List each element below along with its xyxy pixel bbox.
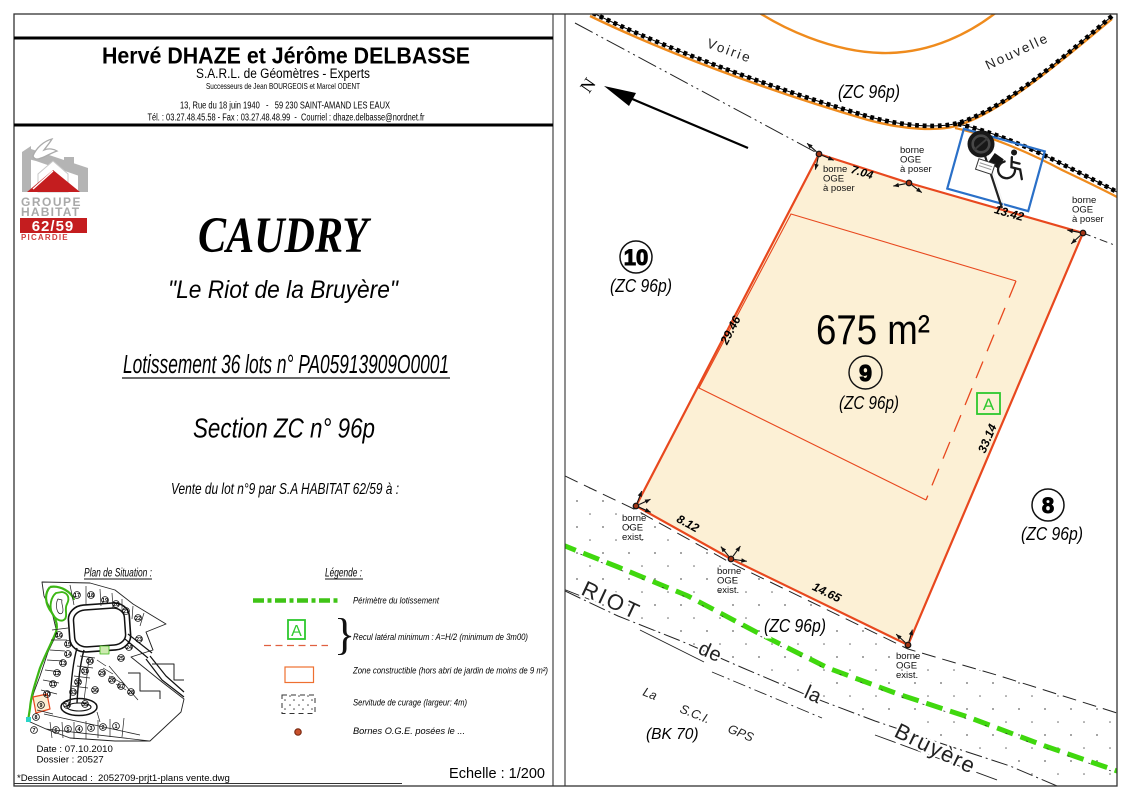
svg-text:33: 33 [70, 690, 76, 696]
svg-text:7: 7 [33, 728, 36, 734]
svg-text:(ZC 96p): (ZC 96p) [1021, 524, 1083, 544]
svg-text:Section ZC n° 96p: Section ZC n° 96p [193, 413, 375, 444]
svg-text:14: 14 [65, 652, 71, 658]
svg-text:La: La [641, 685, 659, 703]
svg-text:36: 36 [92, 688, 98, 694]
svg-text:28: 28 [128, 690, 134, 696]
svg-text:20: 20 [113, 602, 119, 608]
svg-text:Zone constructible (hors abri: Zone constructible (hors abri de jardin … [352, 666, 548, 677]
svg-text:Nouvelle: Nouvelle [983, 30, 1051, 73]
svg-text:Lotissement 36 lots n° PA05913: Lotissement 36 lots n° PA05913909O0001 [123, 351, 449, 379]
svg-text:17: 17 [74, 593, 80, 599]
svg-text:Voirie: Voirie [705, 36, 754, 66]
svg-text:31: 31 [82, 669, 88, 675]
svg-text:Vente du lot n°9 par S.A HABIT: Vente du lot n°9 par S.A HABITAT 62/59 à… [171, 481, 399, 498]
svg-text:12: 12 [54, 671, 60, 677]
svg-text:5: 5 [67, 727, 70, 733]
svg-text:19: 19 [102, 598, 108, 604]
svg-text:GPS: GPS [726, 722, 756, 745]
svg-text:CAUDRY: CAUDRY [198, 208, 372, 264]
svg-text:exist.: exist. [622, 532, 644, 543]
svg-text:à poser: à poser [823, 183, 855, 194]
svg-text:10: 10 [624, 245, 648, 270]
svg-text:9: 9 [40, 703, 43, 709]
svg-text:A: A [983, 395, 995, 414]
svg-text:30: 30 [87, 659, 93, 665]
svg-text:22: 22 [135, 616, 141, 622]
svg-text:26: 26 [109, 678, 115, 684]
svg-text:24: 24 [126, 645, 132, 651]
svg-text:27: 27 [118, 684, 124, 690]
svg-text:8: 8 [1042, 493, 1054, 518]
svg-text:675 m²: 675 m² [816, 306, 930, 353]
svg-text:*Dessin Autocad : 2052709-prj: *Dessin Autocad : 2052709-prjt1-plans ve… [17, 773, 230, 784]
svg-text:3: 3 [90, 726, 93, 732]
svg-text:32: 32 [75, 680, 81, 686]
svg-text:13, Rue du 18 juin 1940 -: 13, Rue du 18 juin 1940 - 59 230 SAINT-A… [180, 101, 390, 112]
svg-text:35: 35 [82, 702, 88, 708]
svg-text:Successeurs de Jean BOURGEOIS: Successeurs de Jean BOURGEOIS et Marcel … [206, 81, 360, 91]
svg-text:S.A.R.L. de Géomètres - Expert: S.A.R.L. de Géomètres - Experts [196, 66, 370, 81]
svg-text:18: 18 [88, 593, 94, 599]
svg-text:HABITAT: HABITAT [21, 205, 80, 219]
svg-text:S.C.I.: S.C.I. [678, 702, 712, 727]
svg-text:à poser: à poser [900, 164, 932, 175]
svg-text:Date : 07.10.2010: Date : 07.10.2010 [37, 744, 113, 755]
svg-text:Servitude de curage (largeur:: Servitude de curage (largeur: 4m) [353, 698, 467, 709]
svg-text:"Le Riot de la Bruyère": "Le Riot de la Bruyère" [168, 276, 399, 304]
svg-text:(ZC 96p): (ZC 96p) [839, 393, 899, 413]
svg-text:Plan de Situation :: Plan de Situation : [84, 568, 152, 580]
svg-text:Hervé DHAZE et Jérôme DELBASSE: Hervé DHAZE et Jérôme DELBASSE [102, 43, 470, 69]
svg-text:9: 9 [859, 360, 872, 386]
svg-text:}: } [334, 610, 355, 659]
svg-text:8: 8 [35, 715, 38, 721]
svg-text:(ZC 96p): (ZC 96p) [610, 276, 672, 296]
svg-text:4: 4 [78, 727, 81, 733]
svg-text:2: 2 [102, 725, 105, 731]
svg-text:A: A [291, 623, 302, 640]
svg-text:29: 29 [99, 671, 105, 677]
svg-text:23: 23 [136, 637, 142, 643]
svg-text:PICARDIE: PICARDIE [21, 233, 69, 242]
svg-text:(ZC 96p): (ZC 96p) [764, 616, 826, 636]
svg-text:34: 34 [64, 703, 70, 709]
svg-text:15: 15 [65, 642, 71, 648]
svg-text:Echelle : 1/200: Echelle : 1/200 [449, 766, 545, 782]
svg-text:Recul latéral minimum : A=H/2: Recul latéral minimum : A=H/2 (minimum d… [353, 632, 528, 643]
svg-text:10: 10 [44, 692, 50, 698]
svg-text:exist.: exist. [717, 585, 739, 596]
svg-text:N: N [576, 74, 600, 96]
svg-text:exist.: exist. [896, 670, 918, 681]
svg-text:11: 11 [50, 682, 56, 688]
svg-text:25: 25 [118, 656, 124, 662]
svg-text:21: 21 [123, 609, 129, 615]
svg-text:1: 1 [115, 724, 118, 730]
svg-text:Dossier : 20527: Dossier : 20527 [37, 755, 104, 766]
svg-text:(ZC 96p): (ZC 96p) [838, 82, 900, 102]
svg-text:16: 16 [56, 633, 62, 639]
svg-text:6: 6 [55, 728, 58, 734]
svg-text:(BK 70): (BK 70) [646, 726, 699, 743]
svg-text:à poser: à poser [1072, 214, 1104, 225]
svg-text:Bornes O.G.E. posées le ...: Bornes O.G.E. posées le ... [353, 726, 465, 737]
svg-text:Légende :: Légende : [325, 568, 362, 580]
svg-text:13: 13 [60, 661, 66, 667]
svg-text:Tél. : 03.27.48.45.58 - Fax :: Tél. : 03.27.48.45.58 - Fax : 03.27.48.4… [148, 113, 425, 124]
svg-text:Périmètre du lotissement: Périmètre du lotissement [353, 596, 439, 607]
